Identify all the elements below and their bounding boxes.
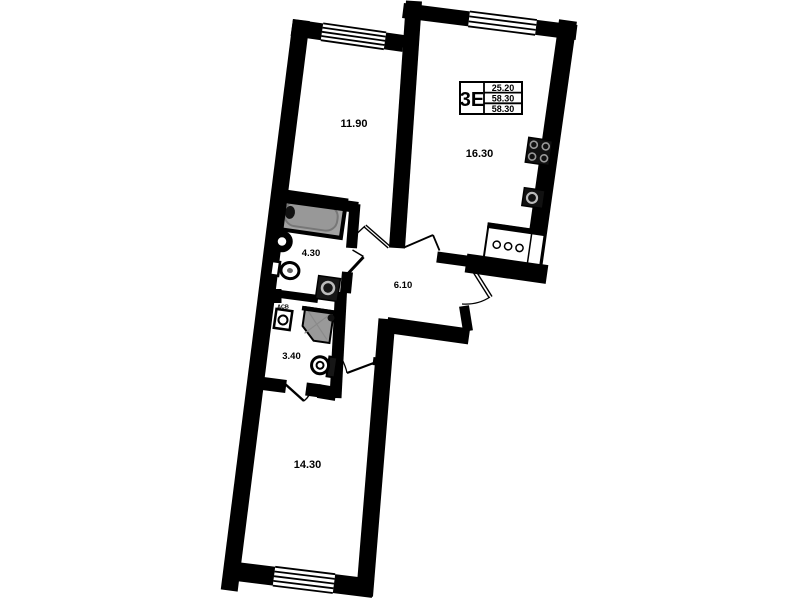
svg-text:14.30: 14.30 [294,459,322,471]
svg-text:25.20: 25.20 [492,83,515,93]
svg-text:3Е: 3Е [460,89,484,111]
svg-text:16.30: 16.30 [466,148,494,160]
svg-text:4.30: 4.30 [302,248,321,259]
svg-text:11.90: 11.90 [341,118,368,130]
svg-text:58.30: 58.30 [492,94,515,104]
svg-text:58.30: 58.30 [492,104,515,114]
svg-text:АСВ: АСВ [277,305,289,311]
svg-text:6.10: 6.10 [394,280,413,291]
svg-text:3.40: 3.40 [282,351,301,362]
